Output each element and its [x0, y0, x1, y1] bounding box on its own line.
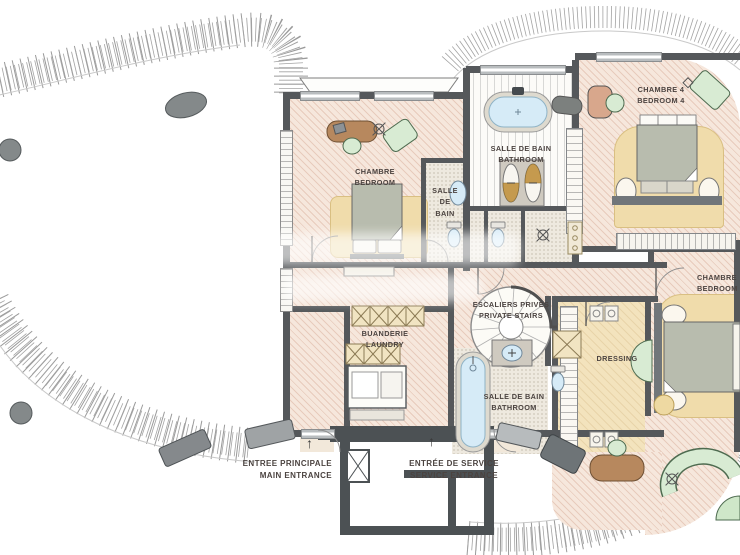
label-line: BATHROOM — [461, 154, 581, 165]
linen-closet — [568, 222, 582, 254]
label-small-bath: SALLE DE BAIN — [423, 185, 467, 219]
label-line: SALLE DE BAIN — [461, 143, 581, 154]
label-main-entrance: ENTREE PRINCIPALE MAIN ENTRANCE — [192, 458, 332, 483]
label-bedroom4: CHAMBRE 4 BEDROOM 4 — [601, 84, 721, 107]
label-bedroom-right: CHAMBRE BEDROOM — [697, 272, 740, 295]
sink — [492, 340, 532, 366]
label-line: BEDROOM 4 — [601, 95, 721, 106]
label-dressing: DRESSING — [577, 353, 657, 364]
label-line: DRESSING — [577, 353, 657, 364]
label-main-bath: SALLE DE BAIN BATHROOM — [461, 143, 581, 166]
elevator — [347, 450, 369, 482]
plant — [716, 496, 740, 520]
label-line: BAIN — [423, 208, 467, 219]
bench — [551, 95, 583, 116]
label-line: BEDROOM — [697, 283, 740, 294]
floor-plan: CHAMBRE BEDROOM SALLE DE BAIN SALLE DE B… — [0, 0, 740, 555]
label-line: BATHROOM — [454, 402, 574, 413]
double-sink — [500, 160, 544, 206]
main-entrance-arrow: ↑ — [306, 436, 313, 450]
label-line: CHAMBRE — [315, 166, 435, 177]
sofa — [668, 456, 736, 494]
label-laundry: BUANDERIE LAUNDRY — [325, 328, 445, 351]
desk-chair — [343, 138, 361, 154]
label-line: CHAMBRE 4 — [601, 84, 721, 95]
shoe-cabinet — [590, 306, 618, 447]
bed — [612, 115, 722, 205]
label-line: MAIN ENTRANCE — [192, 470, 332, 482]
label-service-entrance: ENTRÉE DE SERVICE SERVICE ENTRANCE — [384, 458, 524, 483]
armchair — [381, 117, 419, 153]
service-entrance-arrow: ↑ — [428, 434, 435, 448]
desk — [590, 455, 644, 481]
watermark — [252, 233, 520, 265]
watermark — [283, 274, 483, 302]
washer-dryer — [348, 366, 406, 420]
bathtub — [484, 87, 552, 132]
label-stairs: ESCALIERS PRIVÉS PRIVATE STAIRS — [451, 299, 571, 322]
chair — [608, 440, 626, 456]
label-line: BEDROOM — [315, 177, 435, 188]
label-line: SALLE — [423, 185, 467, 196]
label-line: BUANDERIE — [325, 328, 445, 339]
label-line: ENTRÉE DE SERVICE — [384, 458, 524, 470]
label-line: CHAMBRE — [697, 272, 740, 283]
label-line: ENTREE PRINCIPALE — [192, 458, 332, 470]
label-line: SERVICE ENTRANCE — [384, 470, 524, 482]
label-lower-bath: SALLE DE BAIN BATHROOM — [454, 391, 574, 414]
label-line: PRIVATE STAIRS — [451, 310, 571, 321]
label-line: DE — [423, 196, 467, 207]
round-table — [654, 395, 674, 415]
label-line: SALLE DE BAIN — [454, 391, 574, 402]
label-line: LAUNDRY — [325, 339, 445, 350]
label-line: ESCALIERS PRIVÉS — [451, 299, 571, 310]
label-bedroom: CHAMBRE BEDROOM — [315, 166, 435, 189]
toilet — [551, 366, 565, 391]
